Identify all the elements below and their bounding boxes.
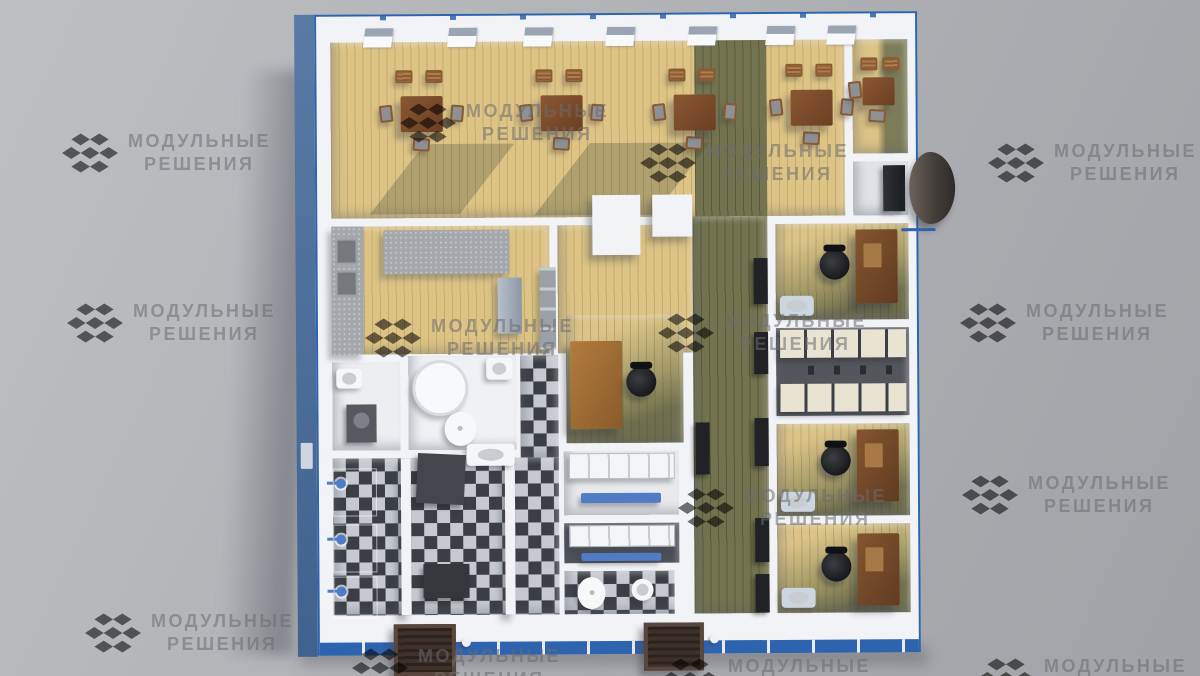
wardrobe-lockers	[780, 383, 906, 412]
kitchen-sink	[336, 271, 358, 297]
dining-chair	[815, 64, 832, 77]
door-lamp	[462, 638, 471, 647]
fridge	[498, 278, 522, 334]
render-scene: МОДУЛЬНЫЕРЕШЕНИЯ МОДУЛЬНЫЕРЕШЕНИЯ МОДУЛЬ…	[0, 0, 1200, 676]
door-lamp	[710, 634, 719, 643]
cubes-logo-icon	[960, 303, 1016, 343]
dining-chair	[769, 98, 784, 116]
dining-set	[376, 64, 467, 165]
shower-partition-wall	[401, 458, 412, 615]
cubes-logo-icon	[978, 658, 1034, 676]
dining-chair	[425, 70, 442, 83]
desk-pad	[863, 243, 881, 267]
cubes-logo-icon	[988, 143, 1044, 183]
window	[447, 28, 477, 47]
kitchen-island	[383, 230, 509, 275]
cubes-logo-icon	[62, 133, 118, 173]
door-panel	[755, 574, 769, 612]
shower-tray	[333, 468, 377, 516]
window	[826, 25, 856, 44]
dining-table	[541, 95, 583, 131]
door-panel	[696, 422, 710, 474]
dining-chair	[565, 69, 582, 82]
wardrobe-lockers	[780, 329, 906, 358]
door-mat	[781, 492, 815, 512]
door-mat	[780, 296, 814, 316]
dining-table	[791, 90, 833, 126]
tech-counter	[883, 165, 905, 211]
watermark: МОДУЛЬНЫЕРЕШЕНИЯ	[988, 140, 1197, 185]
coat-hooks	[788, 365, 898, 375]
dining-chair	[840, 98, 854, 116]
cubes-logo-icon	[962, 475, 1018, 515]
office-chair	[819, 250, 849, 280]
dining-table	[674, 94, 716, 130]
dining-chair	[723, 103, 737, 121]
dining-chair	[785, 64, 802, 77]
dining-chair	[379, 105, 394, 123]
door-panel	[754, 332, 768, 374]
sink	[486, 358, 512, 380]
shower-partition	[416, 453, 466, 505]
serving-partition	[592, 195, 640, 255]
desk	[570, 341, 623, 429]
watermark: МОДУЛЬНЫЕРЕШЕНИЯ	[978, 655, 1187, 676]
dining-chair	[868, 109, 886, 123]
window	[523, 27, 553, 46]
shower-partition	[423, 564, 469, 598]
dining-chair	[668, 69, 685, 82]
dining-set	[649, 62, 740, 163]
sanitary-strip	[520, 355, 559, 457]
door-panel	[755, 518, 769, 562]
watermark: МОДУЛЬНЫЕРЕШЕНИЯ	[962, 472, 1171, 517]
dining-chair	[652, 103, 667, 121]
window	[605, 27, 635, 46]
water-tank	[909, 152, 955, 224]
window	[687, 26, 717, 45]
dining-chair	[519, 104, 534, 122]
bench	[581, 493, 661, 503]
bench	[581, 553, 661, 561]
dining-chair	[535, 69, 552, 82]
dining-set	[516, 63, 607, 164]
door-mat	[782, 588, 816, 608]
round-sink	[631, 579, 653, 601]
roof-edge-ticks	[316, 12, 915, 21]
dining-chair	[802, 131, 820, 145]
desk-pad	[865, 443, 883, 467]
shelving-rack	[540, 267, 557, 349]
dining-chair	[860, 57, 877, 70]
desk-pad	[865, 547, 883, 571]
locker-unit	[569, 525, 675, 548]
modular-building-floorplan	[294, 11, 923, 657]
watermark: МОДУЛЬНЫЕРЕШЕНИЯ	[960, 300, 1169, 345]
dining-set	[766, 57, 857, 158]
floor-plan	[314, 11, 921, 656]
sink	[336, 369, 362, 389]
wall-vent	[301, 443, 313, 469]
dining-chair	[848, 81, 863, 99]
cubes-logo-icon	[67, 303, 123, 343]
meeting-table	[862, 77, 894, 105]
dining-table	[401, 96, 443, 132]
shower-tray	[333, 576, 377, 618]
shower-partition-wall	[505, 458, 516, 615]
dining-chair	[698, 68, 715, 81]
dining-chair	[552, 137, 570, 151]
door-panel	[754, 258, 768, 304]
locker-unit	[569, 453, 675, 480]
window	[363, 28, 393, 47]
window	[765, 26, 795, 45]
dining-chair	[685, 136, 703, 150]
dining-chair	[395, 70, 412, 83]
toilet	[444, 412, 476, 446]
entrance-step	[394, 624, 456, 676]
toilet	[577, 577, 605, 609]
dining-chair	[412, 138, 430, 152]
corner-shower	[412, 360, 468, 416]
office-chair	[821, 446, 851, 476]
dining-chair	[590, 104, 604, 122]
office-chair	[626, 367, 656, 397]
washing-machine	[346, 404, 376, 442]
dining-chair	[882, 57, 899, 70]
shower-tray	[333, 524, 377, 572]
sink-counter	[467, 444, 515, 466]
cubes-logo-icon	[85, 613, 141, 653]
office-chair	[821, 552, 851, 582]
dining-chair	[450, 104, 464, 122]
door-panel	[755, 418, 769, 466]
serving-partition	[652, 194, 692, 236]
kitchen-sink	[335, 239, 357, 265]
entrance-step	[644, 622, 704, 670]
